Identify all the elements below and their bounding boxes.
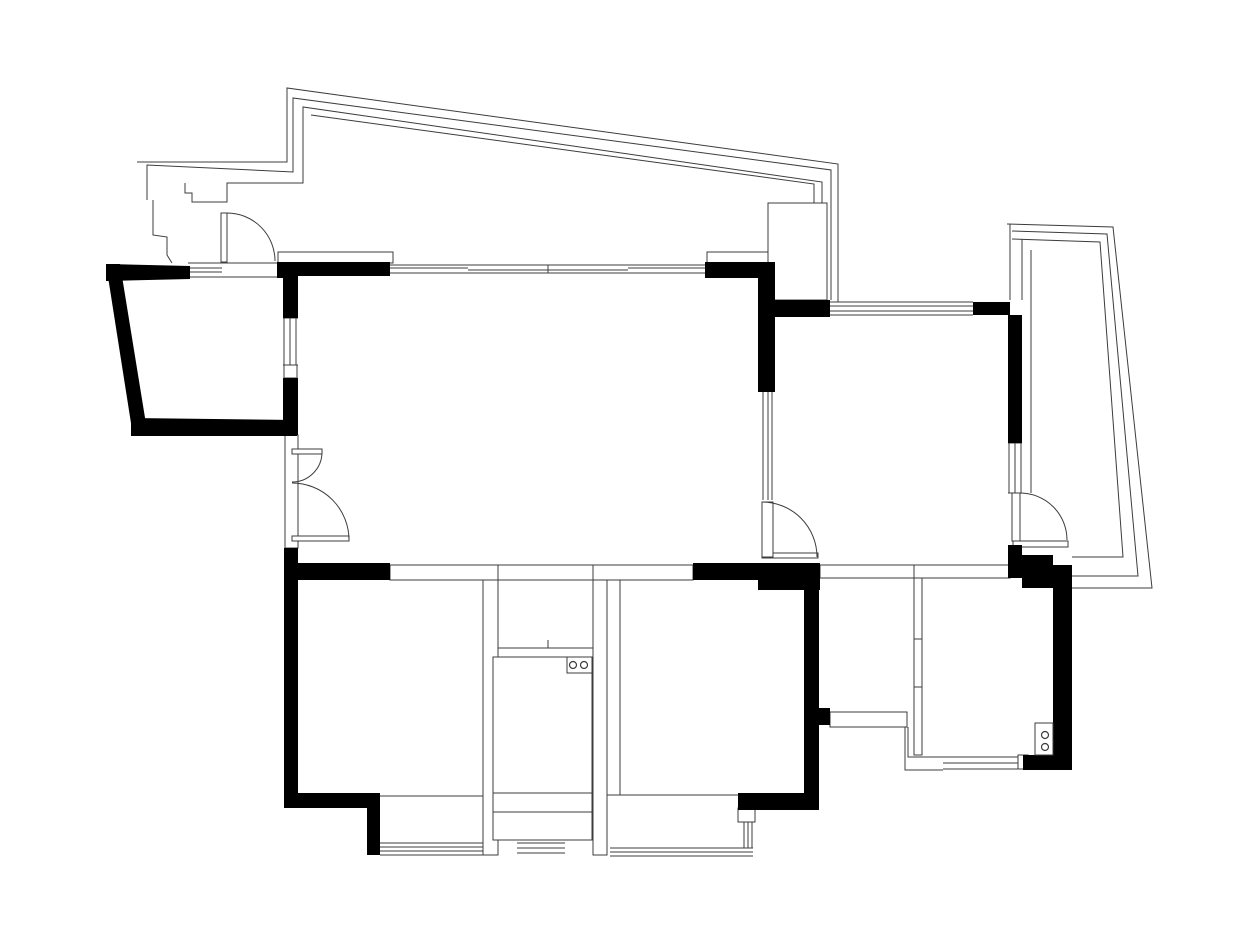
balcony-door-leaf [1012, 493, 1020, 541]
floor-plan-drawing [0, 0, 1260, 945]
terrace-slab-left [278, 252, 393, 263]
living-closet-door-leaf [292, 449, 322, 454]
bedroom2-right-wall [804, 580, 819, 810]
duct-right-thin-wall [593, 565, 607, 855]
living-bottom-wall-left [285, 563, 390, 580]
terrace-slab-right [707, 252, 775, 263]
hallway-bottom-thin-wall [830, 712, 907, 727]
floor-plan-page [0, 0, 1260, 945]
living-bottom-opening-right [593, 565, 693, 580]
kitchen-stove-circle-2 [581, 662, 588, 669]
bath-bottom-wall [1023, 755, 1053, 770]
entry-left-wall [106, 264, 147, 436]
bath-left-thin-wall [914, 578, 922, 755]
terrace-step-left [153, 200, 172, 263]
bath-unit-circle-2 [1042, 744, 1049, 751]
rightroom-right-wall-upper [1008, 315, 1022, 443]
hallway-step-inner [908, 727, 943, 757]
duct-lower-box [493, 657, 592, 840]
balcony-outline-3 [1012, 239, 1123, 557]
terrace-column [768, 203, 827, 300]
duct-upper-box [498, 580, 593, 648]
living-side-door-swing-arc [292, 483, 349, 540]
entry-door-swing-arc [227, 213, 275, 261]
terrace-outline-inner [311, 115, 814, 203]
bath-unit-circle-1 [1042, 732, 1049, 739]
entry-door-leaf [221, 213, 227, 262]
bath-right-wall [1053, 578, 1072, 770]
bedroom2-left-thin-wall [607, 565, 620, 795]
living-left-wall-mid [283, 378, 298, 435]
balcony-outline-outer [1007, 224, 1152, 588]
bedroom2-window-end-cap [738, 808, 755, 822]
rightroom-top-wall-left [773, 300, 830, 317]
bedroom2-bottom-wall [738, 793, 819, 810]
kitchen-stove-circle-1 [570, 662, 577, 669]
terrace-outline-3 [185, 107, 822, 203]
rightroom-door-leaf [762, 502, 773, 557]
rightroom-top-wall-right [973, 302, 1010, 315]
hallway-wall-stub [819, 708, 830, 725]
living-left-sill-box [284, 365, 297, 378]
entry-bottom-wall [131, 418, 297, 436]
partition-wall-upper [758, 262, 775, 392]
living-bottom-opening-left [390, 565, 498, 580]
bedroom1-left-wall [284, 548, 298, 808]
hallway-step-outer [905, 727, 943, 770]
living-side-door-leaf [292, 536, 349, 541]
rightroom-bottom-thin-wall [820, 565, 1010, 578]
balcony-door-swing-arc [1020, 493, 1067, 540]
bedroom1-bay-step [367, 795, 380, 855]
living-top-wall-left [283, 262, 390, 276]
